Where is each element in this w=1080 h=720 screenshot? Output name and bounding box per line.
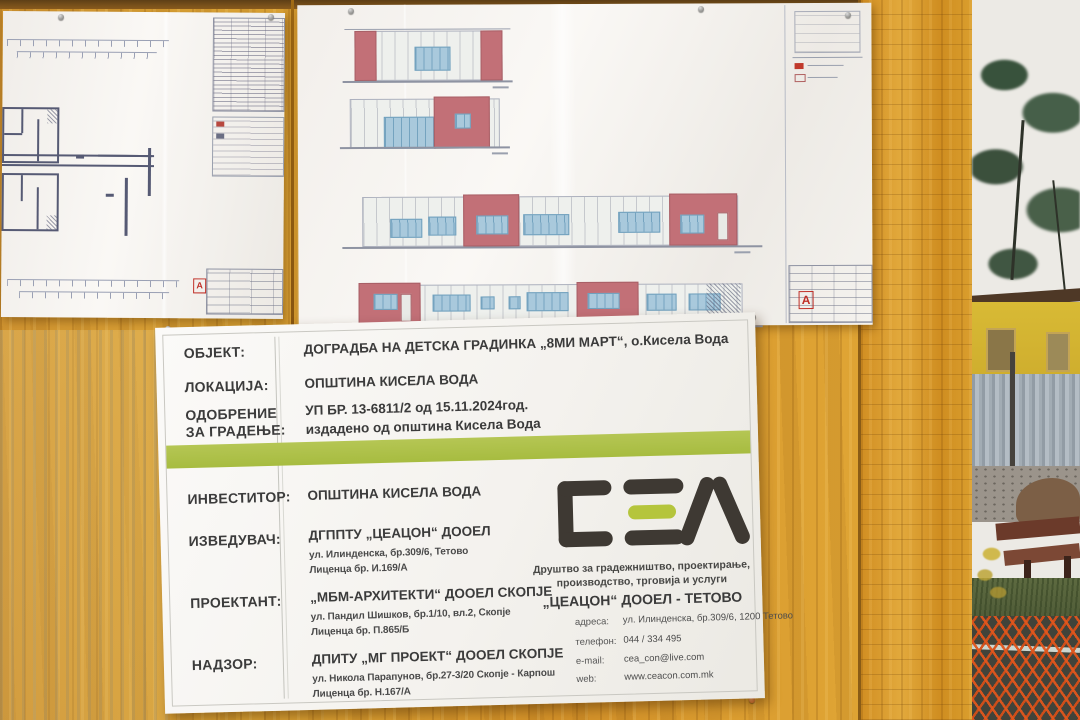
- pin: [268, 14, 274, 20]
- dimension-line: [7, 39, 169, 47]
- logo-c-stroke: [559, 531, 613, 547]
- orange-safety-mesh: [972, 616, 1080, 720]
- dimension-line: [19, 291, 169, 299]
- elevation-label: [734, 251, 750, 253]
- window-glyph: [455, 113, 471, 128]
- wall-pier: [76, 155, 84, 159]
- door-glyph: [717, 212, 728, 240]
- elevation-label: [492, 152, 508, 154]
- plan-room-block: [2, 173, 59, 231]
- field-label-designer: ПРОЕКТАНТ:: [190, 592, 300, 612]
- wood-post: [858, 0, 978, 720]
- legend-swatch-gray: [216, 134, 224, 139]
- field-label-location: ЛОКАЦИЈА:: [184, 377, 279, 396]
- plan-legend: [212, 116, 284, 177]
- door-glyph: [401, 294, 412, 322]
- legend-title-line: [793, 57, 863, 58]
- red-facade-panel: [354, 31, 376, 81]
- dimension-line: [7, 279, 179, 287]
- window-glyph: [374, 294, 398, 310]
- revision-stamp-a: A: [799, 291, 814, 309]
- paper-crease: [161, 12, 169, 318]
- contact-label-phone: телефон:: [575, 636, 616, 648]
- red-facade-panel: [480, 30, 502, 80]
- legend-text-line: [808, 65, 844, 66]
- legend-text-line: [808, 77, 838, 78]
- ground-shadow-area: [972, 616, 1080, 720]
- plank-seam: [291, 0, 294, 330]
- ground-line: [340, 146, 510, 149]
- sheet-column-divider: [784, 5, 786, 323]
- red-facade-panel: [463, 194, 519, 246]
- key-plan-sketch: [794, 11, 860, 53]
- field-label-permit: ОДОБРЕНИЕ ЗА ГРАДЕЊЕ:: [185, 404, 298, 441]
- window-glyph: [588, 293, 620, 309]
- window-glyph: [509, 296, 521, 309]
- metal-fence: [972, 374, 1080, 468]
- wall-segment: [21, 175, 23, 201]
- wall-segment: [4, 133, 22, 135]
- contact-label-email: e-mail:: [576, 655, 605, 667]
- window-glyph: [523, 214, 569, 235]
- contact-value-phone: 044 / 334 495: [623, 633, 681, 646]
- logo-e-stroke: [625, 529, 685, 546]
- plan-revision-stamp: A: [193, 278, 206, 293]
- elevation-drawing-3: [356, 191, 756, 259]
- dimension-line: [17, 51, 157, 59]
- ground-line: [342, 245, 762, 249]
- yellow-building: [972, 302, 1080, 376]
- contact-value-email: cea_con@live.com: [624, 652, 705, 665]
- field-label-supervision: НАДЗОР:: [192, 654, 302, 674]
- outdoor-scene: [972, 0, 1080, 720]
- elevation-drawing-2: [340, 94, 510, 157]
- legend-swatch-outline: [795, 74, 806, 82]
- wall-segment: [21, 109, 23, 133]
- pin: [698, 6, 704, 12]
- window-glyph: [527, 292, 569, 311]
- fence-pole: [1010, 352, 1015, 470]
- pin: [845, 12, 851, 18]
- paper-glare: [549, 4, 576, 326]
- elevations-sheet: A: [297, 3, 872, 328]
- red-facade-panel: [434, 96, 490, 148]
- red-facade-panel: [669, 193, 737, 245]
- window-glyph: [433, 295, 471, 312]
- wall-segment: [125, 178, 128, 236]
- window-glyph: [481, 296, 495, 309]
- contact-value-web: www.ceacon.com.mk: [624, 669, 713, 682]
- elevation-drawing-1: [342, 24, 512, 91]
- ground-line: [343, 80, 513, 83]
- field-label-investor: ИНВЕСТИТОР:: [187, 488, 297, 508]
- legend-swatch-red: [216, 122, 224, 127]
- window-glyph: [647, 294, 677, 311]
- window-glyph: [476, 215, 508, 234]
- yellow-shrub: [974, 540, 1018, 610]
- field-label-object: ОБЈЕКТ:: [184, 343, 274, 362]
- glazed-entrance: [384, 117, 436, 149]
- pin: [348, 8, 354, 14]
- room-schedule-table: [212, 17, 285, 112]
- wall-pier: [106, 194, 114, 197]
- wall-segment: [37, 187, 39, 229]
- window-glyph: [680, 214, 704, 233]
- construction-info-sign: ОБЈЕКТ: ДОГРАДБА НА ДЕТСКА ГРАДИНКА „8МИ…: [155, 312, 765, 714]
- window-glyph: [414, 47, 450, 71]
- logo-e-stroke: [623, 478, 683, 495]
- plan-title-block: [206, 268, 283, 315]
- pin: [58, 14, 64, 20]
- legend-swatch-red: [795, 63, 804, 69]
- weathered-wood-patch: [0, 330, 170, 720]
- logo-e-green-stroke: [628, 504, 676, 519]
- window-glyph: [390, 219, 422, 238]
- window-glyph: [428, 217, 456, 236]
- contact-label-web: web:: [576, 673, 596, 685]
- floorplan-sheet: A: [1, 11, 285, 319]
- field-label-contractor: ИЗВЕДУВАЧ:: [188, 530, 298, 550]
- wall-hatch: [47, 109, 57, 123]
- contact-label-address: адреса:: [575, 616, 609, 628]
- building-window: [1046, 332, 1070, 372]
- logo-lambda-stroke: [710, 474, 752, 546]
- logo-c-stroke: [557, 480, 611, 496]
- wall-hatch: [47, 215, 57, 229]
- wall-segment: [98, 155, 152, 157]
- elevation-label: [493, 86, 509, 88]
- window-glyph: [618, 212, 660, 233]
- photo-construction-board: A: [0, 0, 1080, 720]
- ceacon-logo: [557, 468, 751, 555]
